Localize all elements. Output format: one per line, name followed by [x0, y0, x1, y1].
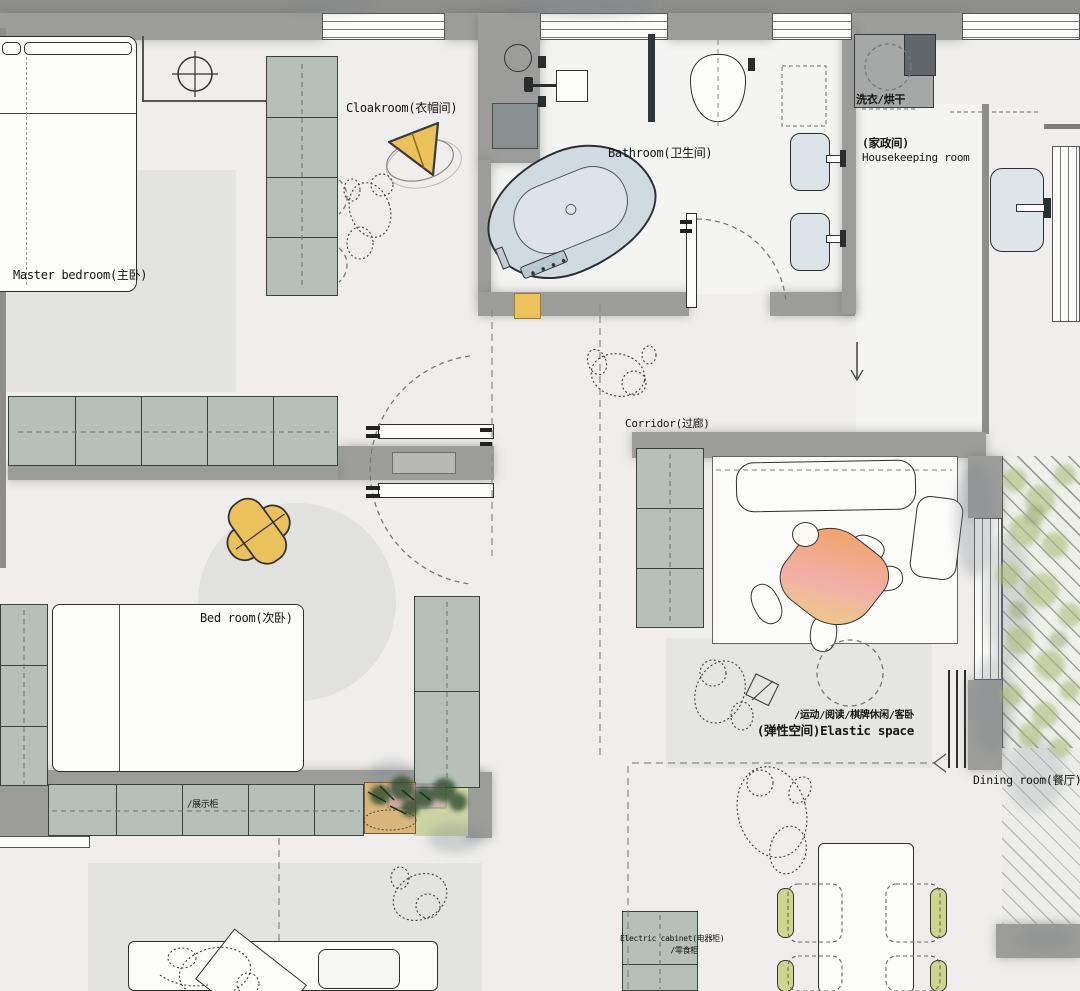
glass-partition — [648, 34, 655, 122]
corridor-walking-figure — [584, 346, 656, 401]
dining-room-label: Dining room(餐厅) — [973, 773, 1080, 787]
dining-chair — [930, 888, 947, 938]
elastic-long-pillow — [736, 459, 917, 512]
shower-niche-box — [492, 103, 538, 149]
electric-cabinet-label: Electric cabinet(电器柜) — [620, 934, 698, 944]
faucet — [1016, 204, 1046, 212]
dining-chair — [777, 960, 794, 991]
sliding-door-panel — [378, 424, 494, 439]
ceiling-target-symbol — [172, 51, 218, 97]
pillow — [24, 42, 132, 55]
plant-pot-cell — [364, 782, 416, 834]
display-cabinet-label: /展示柜 — [187, 800, 218, 811]
master-bedroom-label: Master bedroom(主卧) — [13, 268, 147, 283]
bottom-right-wall — [996, 924, 1080, 958]
bathroom-door-leaf — [686, 213, 697, 308]
dining-chair — [777, 888, 794, 938]
balcony-window-frame — [974, 518, 1002, 680]
elastic-space-uses-label: /运动/阅读/棋牌休闲/客卧 — [690, 710, 914, 723]
window — [962, 13, 1080, 40]
shower-fixture — [556, 70, 588, 102]
master-bed — [0, 36, 137, 292]
washer-dark-box — [904, 34, 936, 76]
dining-chair — [930, 960, 947, 991]
cloakroom-label: Cloakroom(衣帽间) — [346, 101, 457, 116]
door-wall-inner — [392, 452, 456, 474]
housekeeping-east-wall — [982, 104, 989, 434]
balcony-frame-bottom — [968, 680, 1002, 770]
wall — [668, 13, 772, 40]
person-head — [792, 522, 819, 547]
wall-fixture — [538, 56, 546, 68]
balcony-garden-hatch — [1002, 456, 1080, 748]
housekeeping-label-en: Housekeeping room — [862, 151, 969, 165]
cloakroom-nook-wall-h — [142, 100, 267, 102]
elastic-cabinet-column — [636, 448, 704, 628]
bed-center-dashline — [26, 57, 27, 285]
bedroom-north-wall — [8, 464, 338, 480]
bathroom-label: Bathroom(卫生间) — [608, 146, 712, 161]
bedroom-label: Bed room(次卧) — [200, 611, 293, 626]
bedroom-right-cabinet — [414, 596, 480, 788]
bathroom-south-wall-left — [478, 292, 689, 316]
window — [322, 13, 445, 40]
window-column-east — [1052, 146, 1080, 322]
elastic-space-rug — [666, 638, 932, 768]
bedroom-top-wardrobe — [8, 396, 338, 466]
faucet-base — [1044, 198, 1051, 218]
housekeeping-label-cn: (家政间) — [862, 136, 909, 150]
faucet-base — [840, 150, 846, 167]
cloakroom-lounge-chair — [382, 123, 467, 196]
floor-plan: Master bedroom(主卧) Cloakroom(衣帽间) Bathro… — [0, 0, 1080, 991]
bathroom-sink — [790, 213, 830, 271]
shower-head — [524, 77, 533, 92]
tray-item — [318, 949, 400, 989]
elastic-side-pillow — [908, 494, 965, 581]
laundry-label: 洗衣/烘干 — [856, 93, 905, 107]
bedroom-bed — [52, 604, 304, 772]
shower-arm — [532, 84, 556, 87]
snack-cabinet-label: /零食柜 — [620, 946, 698, 956]
dining-lounging-figure — [727, 759, 816, 877]
dining-window-lines — [948, 670, 970, 768]
window — [772, 13, 852, 40]
elastic-space-name-label: (弹性空间)Elastic space — [690, 723, 914, 739]
cloakroom-nook-wall-v — [142, 36, 144, 102]
top-wall-band — [0, 0, 1080, 13]
headboard-line — [119, 605, 120, 771]
master-wardrobe — [266, 56, 338, 296]
faucet-base — [840, 230, 846, 247]
bathroom-sink — [790, 133, 830, 191]
corridor-label: Corridor(过廊) — [625, 417, 710, 431]
wall-fixture — [538, 96, 546, 107]
sliding-door-panel — [378, 483, 494, 498]
shelf-sliver — [0, 836, 90, 848]
wall-circle-fixture — [504, 44, 532, 72]
bedroom-left-cabinet — [0, 604, 48, 786]
pillow — [2, 42, 21, 55]
wall-block-left-bottom — [0, 786, 48, 836]
blanket-fold-line — [0, 113, 136, 114]
flush-plate — [748, 58, 755, 71]
balcony-frame-top — [968, 456, 1002, 518]
dining-table — [818, 843, 914, 991]
cloakroom-figure — [342, 174, 397, 259]
wall-line-topright — [1044, 124, 1080, 129]
